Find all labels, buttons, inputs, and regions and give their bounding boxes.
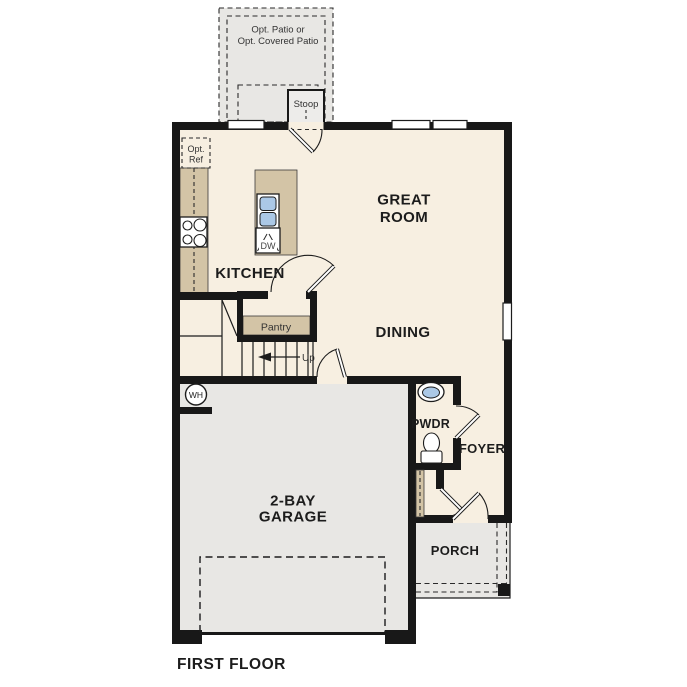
floor-plan-page: Opt. Patio or Opt. Covered Patio Opt. Re…	[0, 0, 687, 687]
pwdr-east-wall	[453, 384, 461, 405]
up-label: Up	[302, 353, 315, 364]
great-room-window	[392, 121, 430, 130]
dining-window	[503, 303, 512, 340]
stoop-door-opening	[289, 122, 324, 130]
water-heater-nook-wall	[180, 407, 212, 414]
range	[180, 217, 207, 247]
dining-south-wall	[347, 376, 461, 384]
garage-label-line2: GARAGE	[259, 509, 327, 526]
main-floor	[176, 126, 508, 380]
water-heater: WH	[186, 384, 207, 405]
kitchen-south-wall	[172, 292, 243, 300]
burner	[183, 221, 192, 230]
pantry-label: Pantry	[261, 322, 292, 334]
first-floor-title: FIRST FLOOR	[177, 656, 286, 673]
porch-label: PORCH	[431, 543, 479, 558]
floor-plan-drawing: Opt. Patio or Opt. Covered Patio Opt. Re…	[0, 0, 687, 687]
kitchen-label: KITCHEN	[215, 265, 284, 282]
patio-label-line1: Opt. Patio or	[251, 25, 304, 36]
garage-north-wall	[172, 376, 317, 384]
garage-entry-opening	[317, 376, 347, 384]
dining-label: DINING	[376, 324, 431, 341]
garage-door-header	[202, 632, 385, 635]
dishwasher: DW	[256, 228, 280, 253]
pantry-north-wall	[237, 291, 268, 299]
great-room-label-line1: GREAT	[377, 192, 430, 209]
burner	[194, 219, 206, 231]
porch-floor	[412, 519, 510, 598]
stoop-label: Stoop	[294, 99, 319, 110]
foyer-south-wall	[408, 515, 453, 523]
vanity-basin	[423, 387, 440, 398]
foyer-label: FOYER	[459, 441, 506, 456]
toilet-tank	[421, 451, 442, 463]
pantry-door-opening	[268, 291, 306, 299]
toilet-bowl	[424, 433, 440, 453]
great-room-window	[433, 121, 467, 130]
garage-south-wall	[172, 630, 202, 644]
pwdr-south-wall	[408, 463, 461, 470]
coat-closet	[416, 470, 424, 517]
refrigerator-label-line2: Ref	[189, 155, 204, 165]
porch-post	[498, 584, 510, 596]
kitchen-window	[228, 121, 264, 130]
sink-basin	[260, 197, 276, 211]
closet-east-wall	[436, 470, 444, 489]
burner	[194, 235, 206, 247]
pantry-east-wall	[310, 291, 317, 342]
garage-south-wall	[385, 630, 416, 644]
water-heater-label: WH	[189, 390, 203, 400]
island-sink	[257, 194, 279, 229]
patio-label-line2: Opt. Covered Patio	[238, 36, 319, 47]
garage-label-line1: 2-BAY	[270, 493, 316, 510]
refrigerator-label-line1: Opt.	[187, 144, 204, 154]
stoop: Stoop	[288, 90, 324, 125]
dishwasher-label: DW	[261, 241, 276, 251]
burner	[183, 235, 192, 244]
great-room-label-line2: ROOM	[380, 209, 428, 226]
foyer-south-wall	[488, 515, 512, 523]
sink-basin	[260, 213, 276, 227]
pantry-south-wall	[237, 335, 317, 342]
pwdr-label: PWDR	[411, 417, 450, 431]
